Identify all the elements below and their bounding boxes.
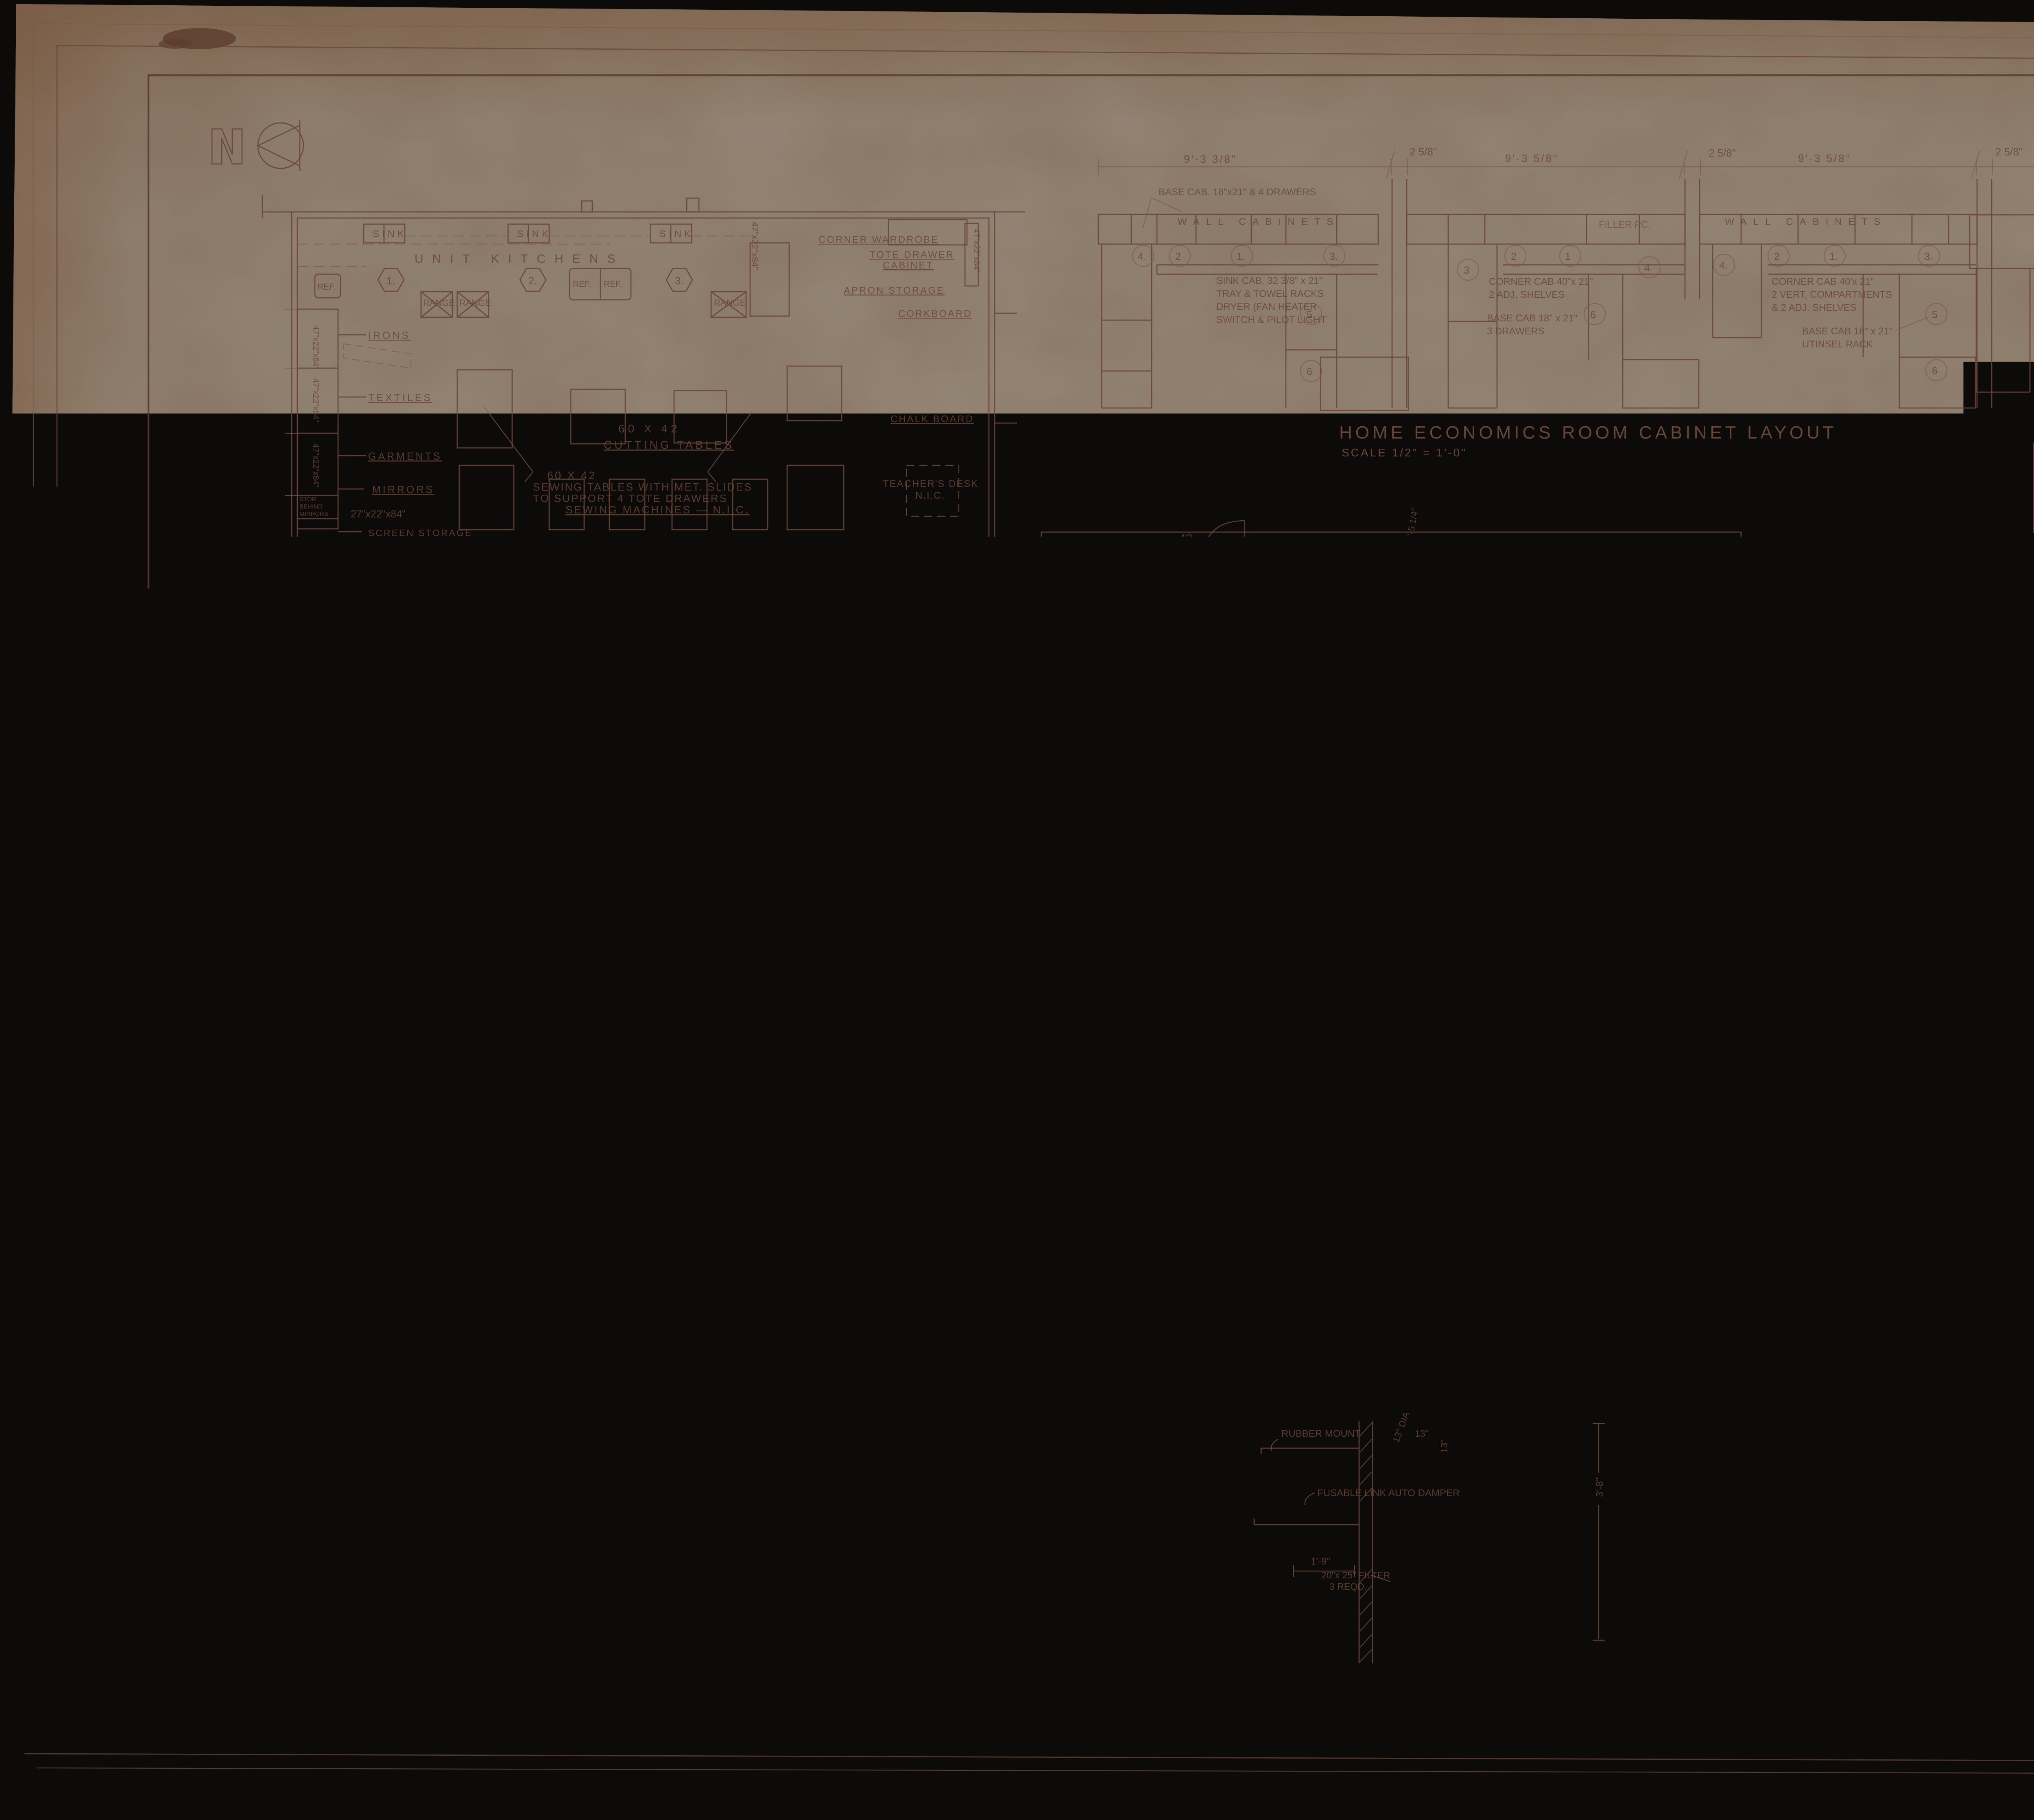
- svg-text:POT RACK OVER.: POT RACK OVER.: [1407, 689, 1417, 765]
- svg-text:TO SUPPORT 4 TOTE DRAWERS: TO SUPPORT 4 TOTE DRAWERS: [533, 492, 728, 504]
- svg-text:2'-6": 2'-6": [291, 1512, 312, 1523]
- svg-text:RANGE: RANGE: [423, 298, 455, 308]
- svg-text:4'3: 4'3: [1180, 532, 1192, 543]
- svg-text:FAN MOUNT. DETAIL: FAN MOUNT. DETAIL: [828, 1571, 1020, 1589]
- svg-text:REF.: REF.: [573, 279, 591, 289]
- svg-text:SEE DET. THIS SHEET: SEE DET. THIS SHEET: [1949, 611, 2034, 620]
- svg-text:CENTRIFUGAL FAN: CENTRIFUGAL FAN: [1074, 1508, 1176, 1519]
- svg-text:SEE DET. THIS SHEET: SEE DET. THIS SHEET: [1967, 1234, 2034, 1244]
- svg-text:RANGES N.I.C.: RANGES N.I.C.: [1319, 696, 1329, 759]
- svg-text:9'-3 5/8": 9'-3 5/8": [1798, 152, 1851, 164]
- svg-text:2 1/2": 2 1/2": [558, 1410, 567, 1432]
- svg-text:9'-3 5/8": 9'-3 5/8": [1505, 152, 1558, 164]
- svg-text:1/4" CHALKBOARD: 1/4" CHALKBOARD: [848, 1037, 965, 1047]
- svg-text:STAINLESS STEEL: STAINLESS STEEL: [1528, 611, 1607, 622]
- svg-text:1" BIRCH PLYWOOD: 1" BIRCH PLYWOOD: [260, 1540, 354, 1551]
- svg-text:EAST WALL ELEVATION: EAST WALL ELEVATION: [439, 912, 685, 930]
- svg-text:LIFT: LIFT: [1949, 592, 1965, 601]
- svg-text:REACH IN DOOR: REACH IN DOOR: [1172, 851, 1247, 861]
- svg-text:HOME ECONOMICS ROOM: HOME ECONOMICS ROOM: [463, 608, 744, 627]
- svg-text:36": 36": [725, 781, 739, 792]
- svg-text:OPEN: OPEN: [2016, 904, 2034, 913]
- svg-text:33: 33: [1183, 688, 1194, 699]
- svg-text:RUBBER MOUNT: RUBBER MOUNT: [1281, 1428, 1361, 1439]
- svg-text:SECTION A-A: SECTION A-A: [948, 1288, 1053, 1302]
- svg-text:SEE DETAILS THIS SHEET: SEE DETAILS THIS SHEET: [1333, 1242, 1479, 1254]
- svg-text:2x4: 2x4: [497, 1525, 512, 1536]
- svg-text:OPEN: OPEN: [1841, 904, 1865, 913]
- svg-text:2x4: 2x4: [505, 1652, 520, 1663]
- svg-text:13": 13": [1415, 1428, 1429, 1439]
- svg-text:BLOWER UNIT: BLOWER UNIT: [1940, 1210, 2006, 1220]
- svg-text:IRONS: IRONS: [509, 1045, 538, 1055]
- svg-text:47"x22"x84": 47"x22"x84": [311, 378, 320, 422]
- svg-text:BASE CAB: BASE CAB: [1435, 882, 1476, 891]
- svg-text:CUTTING TABLES: CUTTING TABLES: [604, 439, 734, 451]
- svg-text:3/8"φ BOLTS: 3/8"φ BOLTS: [775, 1392, 830, 1402]
- svg-text:WDO.: WDO.: [1849, 1046, 1879, 1057]
- svg-text:38"x 30": 38"x 30": [1435, 892, 1465, 901]
- svg-text:SEE DET. THIS SHT.: SEE DET. THIS SHT.: [1172, 862, 1260, 873]
- svg-text:CORNER CAB: CORNER CAB: [1497, 886, 1551, 895]
- svg-text:2'-6": 2'-6": [563, 1566, 572, 1583]
- svg-text:10"x 12" INSPECTION PLATES: 10"x 12" INSPECTION PLATES: [1768, 1562, 1905, 1573]
- svg-text:CORNER CAB 40"x 21": CORNER CAB 40"x 21": [1489, 276, 1593, 287]
- svg-text:7": 7": [517, 1243, 527, 1251]
- svg-text:PASS DOOR: PASS DOOR: [1281, 604, 1336, 615]
- svg-text:—A: —A: [1505, 1179, 1521, 1190]
- svg-text:3/8' φ BARS: 3/8' φ BARS: [567, 1380, 617, 1390]
- svg-text:WARDROBE: WARDROBE: [810, 825, 871, 836]
- svg-text:FILLER @ COL: FILLER @ COL: [500, 870, 557, 879]
- svg-text:INCAND. BULB: INCAND. BULB: [1404, 1554, 1473, 1565]
- svg-text:A: A: [805, 1250, 812, 1263]
- svg-text:5: 5: [1932, 309, 1938, 321]
- svg-text:REINF, CONC. LINTEL: REINF, CONC. LINTEL: [535, 1318, 636, 1329]
- svg-text:311: 311: [1600, 1143, 1616, 1154]
- svg-text:DOOR: DOOR: [1376, 1119, 1404, 1130]
- svg-text:OPG.: OPG.: [575, 1565, 585, 1586]
- svg-text:REF.: REF.: [604, 279, 622, 289]
- svg-text:SEWING MACHINES — N.I.C.: SEWING MACHINES — N.I.C.: [565, 504, 750, 516]
- svg-text:BASE TABLE: BASE TABLE: [1594, 830, 1602, 877]
- svg-text:NORTH WALL ELEVATION: NORTH WALL ELEVATION: [1794, 1366, 1995, 1381]
- svg-text:13"x 10" DUCT ABOVE: 13"x 10" DUCT ABOVE: [1144, 888, 1242, 899]
- svg-text:SWITCH & PILOT LIGHT: SWITCH & PILOT LIGHT: [1216, 314, 1327, 325]
- svg-text:1.: 1.: [386, 275, 395, 287]
- svg-text:WEST WALL ELEVATION: WEST WALL ELEVATION: [1786, 1161, 2034, 1178]
- svg-text:SEWING TABLES WITH MET. SLIDES: SEWING TABLES WITH MET. SLIDES: [533, 481, 753, 493]
- svg-text:2-DRAWERS: 2-DRAWERS: [1253, 901, 1301, 910]
- svg-text:BOT. OF DOOR IN: BOT. OF DOOR IN: [277, 1423, 360, 1434]
- svg-text:2 5/8": 2 5/8": [1995, 146, 2023, 158]
- svg-text:4"x4"x3/16 x 2'-6 L.: 4"x4"x3/16 x 2'-6 L.: [956, 1161, 1043, 1172]
- svg-text:18': 18': [586, 781, 598, 792]
- svg-text:LINE OF GUTTER 4 SIDES.: LINE OF GUTTER 4 SIDES.: [1838, 1624, 1956, 1634]
- svg-text:GARMENTS: GARMENTS: [388, 1045, 439, 1055]
- svg-text:BASE TABLE: BASE TABLE: [1592, 682, 1601, 728]
- svg-text:—B: —B: [1432, 1084, 1448, 1095]
- svg-text:3'-0": 3'-0": [1717, 889, 1727, 907]
- svg-text:2.: 2.: [528, 275, 537, 287]
- svg-text:1.: 1.: [1237, 251, 1245, 262]
- svg-text:CORKBOARD: CORKBOARD: [741, 1042, 796, 1052]
- svg-text:N.I.C.: N.I.C.: [915, 490, 945, 501]
- svg-text:44"x 24": 44"x 24": [1604, 703, 1612, 732]
- svg-text:VEG. PEELER: VEG. PEELER: [1809, 1309, 1869, 1319]
- svg-text:FUSABLE LINK AUTO DAMPER: FUSABLE LINK AUTO DAMPER: [1317, 1488, 1460, 1499]
- svg-text:40": 40": [620, 781, 634, 792]
- svg-text:62"x 30": 62"x 30": [1497, 896, 1527, 905]
- svg-text:4"x3"x 3/16" L x 2'-10": 4"x3"x 3/16" L x 2'-10": [999, 1440, 1090, 1451]
- svg-text:2: 2: [1175, 251, 1181, 262]
- svg-text:47"x22"x84": 47"x22"x84": [311, 443, 320, 487]
- svg-text:REACH IN COOLER DOOR: REACH IN COOLER DOOR: [1865, 1269, 1983, 1279]
- svg-text:6-DRAWERS: 6-DRAWERS: [1378, 901, 1427, 910]
- svg-text:TEXTILES: TEXTILES: [448, 1045, 491, 1055]
- svg-text:LINE OF 2"x 2" L FRAME AT B: LINE OF 2"x 2" L FRAME AT BACK: [1685, 1434, 1839, 1445]
- svg-text:1: 1: [1565, 251, 1571, 262]
- svg-text:SASH BALANCE: SASH BALANCE: [306, 1217, 378, 1227]
- svg-text:FAN: FAN: [898, 1513, 918, 1525]
- svg-text:4: 4: [1644, 262, 1650, 274]
- svg-text:WALL CABINETS: WALL CABINETS: [1725, 216, 1887, 227]
- svg-text:4 1/2": 4 1/2": [418, 1498, 428, 1521]
- svg-text:UTINSEL RACK: UTINSEL RACK: [1802, 339, 1873, 350]
- svg-text:2 ADJ, SHELVES: 2 ADJ, SHELVES: [1489, 289, 1565, 300]
- svg-text:RANGE: RANGE: [714, 298, 746, 308]
- svg-text:MIRRORS: MIRRORS: [372, 484, 434, 495]
- svg-text:S.S. SINK: S.S. SINK: [1423, 619, 1463, 629]
- svg-text:HARDWOOD EDGES 4 SIDES: HARDWOOD EDGES 4 SIDES: [251, 1552, 388, 1563]
- svg-text:( COUNTER TOP: ( COUNTER TOP: [325, 1619, 402, 1630]
- svg-text:4.: 4.: [1719, 260, 1728, 271]
- svg-text:2'-8": 2'-8": [1530, 644, 1550, 655]
- svg-text:6'-8": 6'-8": [599, 1456, 608, 1473]
- svg-text:SCALE 1/2" = 1'-0": SCALE 1/2" = 1'-0": [1342, 446, 1467, 459]
- svg-text:ELEVATION: ELEVATION: [211, 1650, 316, 1667]
- svg-text:BOT. OF BALANCE TAPE: BOT. OF BALANCE TAPE: [211, 1353, 220, 1448]
- svg-text:35": 35": [330, 781, 344, 792]
- svg-text:47"x22"x84": 47"x22"x84": [311, 325, 320, 369]
- svg-text:4": 4": [583, 1660, 591, 1671]
- svg-text:2"x 2"x 1/8" L FRAME 4 SIDES: 2"x 2"x 1/8" L FRAME 4 SIDES: [1404, 1471, 1539, 1482]
- svg-text:SCALE 1/4" = 1'-0": SCALE 1/4" = 1'-0": [464, 631, 568, 644]
- svg-text:BASE CAB 18" x 21": BASE CAB 18" x 21": [1802, 326, 1892, 337]
- svg-text:CONC. BLK PARTIT. PLASTER EA.: CONC. BLK PARTIT. PLASTER EA. SIDE: [1415, 1061, 1589, 1072]
- svg-text:5'-9 1/8": 5'-9 1/8": [1277, 642, 1313, 653]
- svg-text:PASS DOOR DET.: PASS DOOR DET.: [182, 1681, 365, 1701]
- svg-text:INSPECTION: INSPECTION: [1514, 1558, 1571, 1569]
- svg-text:REINF. CONC. LINTEL: REINF. CONC. LINTEL: [1551, 1083, 1648, 1094]
- svg-text:47"x22"x84": 47"x22"x84": [750, 222, 760, 270]
- svg-text:MIRROR: MIRROR: [345, 1041, 378, 1050]
- svg-text:SCALE 1/4" = 1'-0": SCALE 1/4" = 1'-0": [1199, 1021, 1339, 1033]
- svg-text:HOOD OVER: HOOD OVER: [1331, 710, 1341, 765]
- svg-text:FILLER PC.: FILLER PC.: [1599, 219, 1651, 230]
- svg-text:40": 40": [437, 781, 451, 792]
- svg-text:40": 40": [493, 781, 507, 792]
- svg-text:7'-0": 7'-0": [1420, 642, 1439, 653]
- svg-text:2-DRAWERS & SHELF: 2-DRAWERS & SHELF: [1497, 906, 1582, 914]
- svg-text:APRON STORAGE: APRON STORAGE: [844, 285, 945, 296]
- svg-text:RANGE HOOD: RANGE HOOD: [1967, 1223, 2031, 1234]
- svg-text:D O.: D O.: [663, 859, 681, 869]
- svg-text:VEG. PEELER: VEG. PEELER: [1286, 867, 1348, 877]
- svg-text:3'-0": 3'-0": [1704, 674, 1715, 692]
- svg-text:FREEZER: FREEZER: [1131, 646, 1141, 687]
- svg-text:NORTH WALL ELEVATION: NORTH WALL ELEVATION: [308, 1116, 556, 1134]
- svg-text:B◀: B◀: [850, 1147, 865, 1159]
- svg-text:CAULK 4 SIDES: CAULK 4 SIDES: [720, 1191, 795, 1202]
- svg-text:SHELVING: SHELVING: [1113, 557, 1123, 602]
- svg-text:4": 4": [1164, 546, 1173, 556]
- svg-text:SCALE 1/4" = 1'-0": SCALE 1/4" = 1'-0": [1333, 1229, 1434, 1241]
- svg-text:LAV.: LAV.: [1247, 685, 1264, 694]
- svg-text:VENT HOLE: VENT HOLE: [1490, 1537, 1545, 1548]
- svg-text:SCALE 3"=1'-0': SCALE 3"=1'-0': [394, 1690, 495, 1703]
- svg-text:GUTTER 4 SIDES: GUTTER 4 SIDES: [1431, 1606, 1508, 1617]
- svg-text:ELEV.: ELEV.: [816, 1287, 882, 1303]
- svg-text:GARMENTS: GARMENTS: [368, 451, 442, 462]
- svg-text:3: 3: [1464, 265, 1469, 276]
- svg-text:4.: 4.: [1138, 251, 1146, 262]
- svg-text:2 1/2": 2 1/2": [561, 1506, 571, 1529]
- svg-text:3.: 3.: [1329, 251, 1338, 262]
- svg-text:WALL CABINETS: WALL CABINETS: [1178, 216, 1340, 227]
- svg-text:GLASS 3 REQD: GLASS 3 REQD: [1443, 1596, 1512, 1606]
- svg-text:18'-8 1/4": 18'-8 1/4": [1393, 795, 1434, 806]
- svg-text:PLATE: PLATE: [1521, 1569, 1550, 1580]
- svg-text:WALL CAB.: WALL CAB.: [1513, 596, 1563, 606]
- svg-text:MIRRORS: MIRRORS: [299, 511, 328, 517]
- svg-text:DOOR: DOOR: [1594, 1119, 1622, 1130]
- svg-text:CLOSET: CLOSET: [1623, 602, 1661, 612]
- svg-text:FLAP DOOR: FLAP DOOR: [1442, 652, 1496, 663]
- svg-text:28"x 21" STEAM: 28"x 21" STEAM: [1597, 760, 1606, 818]
- svg-text:TOTE TRAYS: TOTE TRAYS: [677, 991, 725, 999]
- svg-text:JAMB: JAMB: [477, 1583, 545, 1600]
- svg-text:4": 4": [1085, 805, 1094, 816]
- svg-text:3/4": 3/4": [430, 1378, 446, 1388]
- svg-text:STAINLESS STEEL COUNTER TOP: STAINLESS STEEL COUNTER TOP: [591, 1600, 744, 1611]
- svg-text:IRONS: IRONS: [368, 330, 410, 341]
- svg-text:SCREEN STORAGE: SCREEN STORAGE: [368, 528, 472, 538]
- svg-text:CORKBOARD: CORKBOARD: [898, 308, 972, 319]
- svg-text:PROVIDE BOLT: PROVIDE BOLT: [233, 1591, 304, 1602]
- svg-text:TRAY & TOWEL RACKS: TRAY & TOWEL RACKS: [1216, 288, 1324, 299]
- svg-text:3'-8": 3'-8": [1594, 1477, 1605, 1497]
- svg-text:6: 6: [1590, 309, 1596, 321]
- svg-text:413: 413: [1790, 625, 1807, 637]
- svg-text:CONC. BLK & PLASTER EA. SIDE: CONC. BLK & PLASTER EA. SIDE: [1430, 1164, 1577, 1174]
- svg-text:DRAWERS: DRAWERS: [2029, 1124, 2034, 1133]
- svg-text:35": 35": [545, 781, 559, 792]
- svg-text:27"x22"x84": 27"x22"x84": [351, 508, 406, 520]
- svg-text:GA. 4": GA. 4": [1850, 1477, 1880, 1488]
- svg-text:3'-9": 3'-9": [254, 1488, 264, 1505]
- svg-text:3'-9 3/8": 3'-9 3/8": [1717, 823, 1727, 856]
- svg-text:3'-11 1/8": 3'-11 1/8": [1483, 642, 1523, 653]
- svg-text:OPEN POSITION: OPEN POSITION: [277, 1435, 354, 1446]
- svg-text:WDO.: WDO.: [2028, 1046, 2034, 1057]
- svg-text:HOME ECONOMICS ROOM CABINET LA: HOME ECONOMICS ROOM CABINET LAYOUT: [1339, 423, 1837, 443]
- svg-text:& OPEN SHELF: & OPEN SHELF: [1613, 679, 1622, 735]
- svg-text:3'-2": 3'-2": [1453, 1656, 1473, 1667]
- svg-text:3'-9 3/4": 3'-9 3/4": [1717, 699, 1727, 732]
- svg-text:SOUTH WALL ELEVATION: SOUTH WALL ELEVATION: [673, 1116, 928, 1134]
- svg-text:2: 2: [1774, 251, 1780, 262]
- svg-text:4": 4": [430, 1506, 441, 1514]
- svg-text:RANGE HOOD DETAILS: RANGE HOOD DETAILS: [1124, 1691, 1397, 1711]
- svg-text:SINK CAB. 32 3/8" x 21": SINK CAB. 32 3/8" x 21": [1216, 275, 1323, 286]
- svg-text:EXH. VENT ABOVE: EXH. VENT ABOVE: [1264, 983, 1348, 994]
- svg-text:SHEET METAL HOOD: SHEET METAL HOOD: [1795, 1464, 1917, 1476]
- svg-text:CONC. BLK PARTIT. BEYOND COUNT: CONC. BLK PARTIT. BEYOND COUNTER.: [1831, 810, 2003, 820]
- svg-text:TOTE DRAWER: TOTE DRAWER: [869, 249, 954, 260]
- svg-text:UNIT KITCHENS: UNIT KITCHENS: [415, 252, 624, 266]
- svg-text:3 COMP 20"x24": 3 COMP 20"x24": [1411, 608, 1478, 618]
- svg-text:WELDED TO L: WELDED TO L: [765, 1403, 828, 1414]
- svg-text:44"x 24 &: 44"x 24 &: [1604, 847, 1613, 881]
- svg-text:1'-7": 1'-7": [989, 1212, 1009, 1223]
- svg-text:STEAM TABLE: STEAM TABLE: [1926, 909, 1984, 918]
- svg-text:13": 13": [1439, 1439, 1449, 1453]
- svg-text:ELEV. NORTH WALL OF DINING: ELEV. NORTH WALL OF DINING ROOM: [1331, 1211, 1610, 1227]
- svg-text:V. P. GLOBE &: V. P. GLOBE &: [1412, 1542, 1476, 1553]
- svg-text:3/8": 3/8": [755, 1027, 770, 1037]
- svg-text:OPG.: OPG.: [1344, 554, 1366, 563]
- svg-text:2'-0": 2'-0": [1208, 570, 1218, 588]
- svg-text:PREPARATION TABLE: PREPARATION TABLE: [1494, 676, 1504, 769]
- svg-text:SINK: SINK: [373, 229, 407, 240]
- svg-text:VENT. HOLES: VENT. HOLES: [1715, 1516, 1778, 1527]
- svg-text:3.: 3.: [675, 275, 684, 287]
- svg-text:10'-0": 10'-0": [1170, 795, 1195, 806]
- svg-text:DOORS: DOORS: [1951, 1124, 1979, 1133]
- svg-text:CABINET: CABINET: [883, 260, 934, 271]
- svg-text:JOISTS: JOISTS: [1191, 1356, 1230, 1367]
- svg-text:38"x 30": 38"x 30": [1253, 892, 1283, 901]
- svg-text:CONC. BLK: CONC. BLK: [547, 1476, 600, 1487]
- svg-text:9'-3 3/8": 9'-3 3/8": [1184, 153, 1237, 165]
- svg-text:SINK: SINK: [659, 229, 694, 240]
- svg-text:BEHIND: BEHIND: [299, 503, 323, 510]
- svg-text:HEAD: HEAD: [479, 1437, 549, 1454]
- svg-text:ELEVATION: ELEVATION: [1796, 1654, 1936, 1672]
- svg-text:N.I.C.: N.I.C.: [1143, 669, 1153, 692]
- svg-text:VERT. LIFT: VERT. LIFT: [1281, 593, 1329, 603]
- svg-text:38"X30": 38"X30": [1378, 892, 1408, 901]
- svg-text:SINK: SINK: [517, 229, 551, 240]
- svg-text:10"x 13" DUCT: 10"x 13" DUCT: [1015, 1472, 1081, 1483]
- svg-text:DOOR: DOOR: [1822, 851, 1849, 861]
- svg-text:—A: —A: [1505, 1083, 1521, 1094]
- svg-text:REF.: REF.: [317, 282, 336, 292]
- svg-text:3 REQD.: 3 REQD.: [1329, 1581, 1367, 1592]
- svg-text:CORNER CAB 40'x 21": CORNER CAB 40'x 21": [1772, 276, 1874, 287]
- svg-text:2 5/8": 2 5/8": [1410, 146, 1437, 158]
- svg-text:1'-4": 1'-4": [989, 1236, 1008, 1247]
- svg-text:PASS DOOR: PASS DOOR: [1949, 602, 1996, 611]
- svg-text:3"x 3"x 3/16" L: 3"x 3"x 3/16" L: [1008, 1391, 1069, 1401]
- svg-text:2: 2: [1511, 251, 1517, 262]
- svg-text:2 1/2": 2 1/2": [558, 1643, 568, 1666]
- svg-text:SCALE 1" = 1'-0": SCALE 1" = 1'-0": [1151, 1715, 1267, 1727]
- svg-text:40": 40": [675, 781, 689, 792]
- svg-text:TO FIN. FL.: TO FIN. FL.: [612, 1436, 621, 1481]
- svg-text:SECTION B-B: SECTION B-B: [1141, 1283, 1247, 1298]
- svg-text:COUNTER TOP: COUNTER TOP: [1530, 622, 1594, 632]
- svg-text:BASE CAB.: BASE CAB.: [1253, 882, 1296, 891]
- svg-text:3'-6 3/4": 3'-6 3/4": [1717, 760, 1727, 793]
- svg-text:EAST WALL ELEVATION: EAST WALL ELEVATION: [1871, 740, 2034, 758]
- svg-text:4'-10": 4'-10": [1610, 795, 1635, 806]
- svg-text:WASTE DISPOSER: WASTE DISPOSER: [1335, 633, 1419, 644]
- svg-text:B▼: B▼: [851, 1276, 869, 1288]
- svg-text:1'-0 1/2": 1'-0 1/2": [1729, 895, 1739, 927]
- svg-text:& 2 ADJ. SHELVES: & 2 ADJ. SHELVES: [1772, 302, 1857, 313]
- svg-text:& SHELF: & SHELF: [1253, 911, 1287, 920]
- svg-text:1'-9": 1'-9": [1311, 1556, 1330, 1567]
- svg-text:LINE OF GLASS: LINE OF GLASS: [1765, 1600, 1838, 1611]
- svg-text:3.: 3.: [1924, 251, 1933, 262]
- svg-text:VERT: VERT: [1949, 582, 1970, 591]
- svg-text:CORNER WARDROBE: CORNER WARDROBE: [818, 234, 939, 245]
- svg-text:D O: D O: [504, 858, 520, 868]
- svg-text:12"x12" HEAT RES.: 12"x12" HEAT RES.: [1436, 1585, 1519, 1596]
- svg-text:3 5/8": 3 5/8": [490, 1364, 513, 1374]
- svg-text:SOUTH WALL ELEVATION: SOUTH WALL ELEVATION: [1802, 960, 2031, 977]
- svg-text:BASE CAB 18" x 21": BASE CAB 18" x 21": [1487, 313, 1577, 324]
- svg-text:60 X 42: 60 X 42: [618, 422, 681, 435]
- svg-text:3"x3"x 3/16" L - 4'-0" LONG.: 3"x3"x 3/16" L - 4'-0" LONG. WELDED TO J…: [1283, 1375, 1505, 1386]
- svg-text:- SINK CAB 48"x 30": - SINK CAB 48"x 30": [1358, 866, 1445, 877]
- svg-text:3'-8": 3'-8": [1704, 600, 1715, 618]
- svg-text:5'-7 1/4": 5'-7 1/4": [1663, 795, 1699, 806]
- svg-text:10"x18" DUCT: 10"x18" DUCT: [1159, 1183, 1223, 1194]
- svg-text:PLASTER: PLASTER: [279, 1310, 324, 1321]
- svg-text:60 X 42: 60 X 42: [547, 469, 596, 482]
- svg-text:312: 312: [1382, 1143, 1399, 1154]
- svg-text:RANGES: RANGES: [1903, 1301, 1941, 1311]
- svg-text:A: A: [918, 1241, 925, 1253]
- svg-text:1'-4 1/2": 1'-4 1/2": [984, 1270, 1019, 1281]
- svg-text:TEACHER'S DESK: TEACHER'S DESK: [883, 478, 978, 489]
- svg-text:LIFT ): LIFT ): [285, 1604, 311, 1615]
- svg-text:WALK IN COOLER: WALK IN COOLER: [1131, 810, 1252, 821]
- svg-text:2 5/8": 2 5/8": [1709, 147, 1736, 159]
- svg-text:STEEL JOIST: STEEL JOIST: [877, 1363, 954, 1374]
- svg-text:COOKS TABLE N.I.C.: COOKS TABLE N.I.C.: [1395, 673, 1405, 761]
- svg-text:KITCHEN FLOOR PLAN: KITCHEN FLOOR PLAN: [1197, 994, 1499, 1016]
- svg-text:DRYER (FAN HEATER: DRYER (FAN HEATER: [1216, 301, 1317, 312]
- svg-text:1 1/4": 1 1/4": [459, 1361, 482, 1371]
- svg-text:BASE CAB. 18"x21" & 4 DRAWERS: BASE CAB. 18"x21" & 4 DRAWERS: [1159, 187, 1316, 198]
- svg-text:SHELVING: SHELVING: [1226, 685, 1235, 728]
- svg-text:HOOD VENT AUTO. LOUVER DET: HOOD VENT AUTO. LOUVER DET.: [858, 1309, 1137, 1325]
- svg-text:FAN: FAN: [1198, 738, 1207, 755]
- svg-text:6: 6: [1932, 365, 1938, 377]
- svg-text:2'-6": 2'-6": [1340, 541, 1359, 552]
- svg-text:1.: 1.: [1829, 251, 1838, 262]
- svg-text:SILL: SILL: [494, 1682, 554, 1699]
- svg-text:TEXTILES: TEXTILES: [368, 392, 432, 404]
- svg-text:2-BINS &: 2-BINS &: [1435, 901, 1469, 910]
- svg-text:SECTION: SECTION: [1419, 1666, 1528, 1684]
- svg-text:47"x22"x84": 47"x22"x84": [972, 229, 981, 273]
- svg-text:2-DRAWERS: 2-DRAWERS: [1435, 911, 1484, 920]
